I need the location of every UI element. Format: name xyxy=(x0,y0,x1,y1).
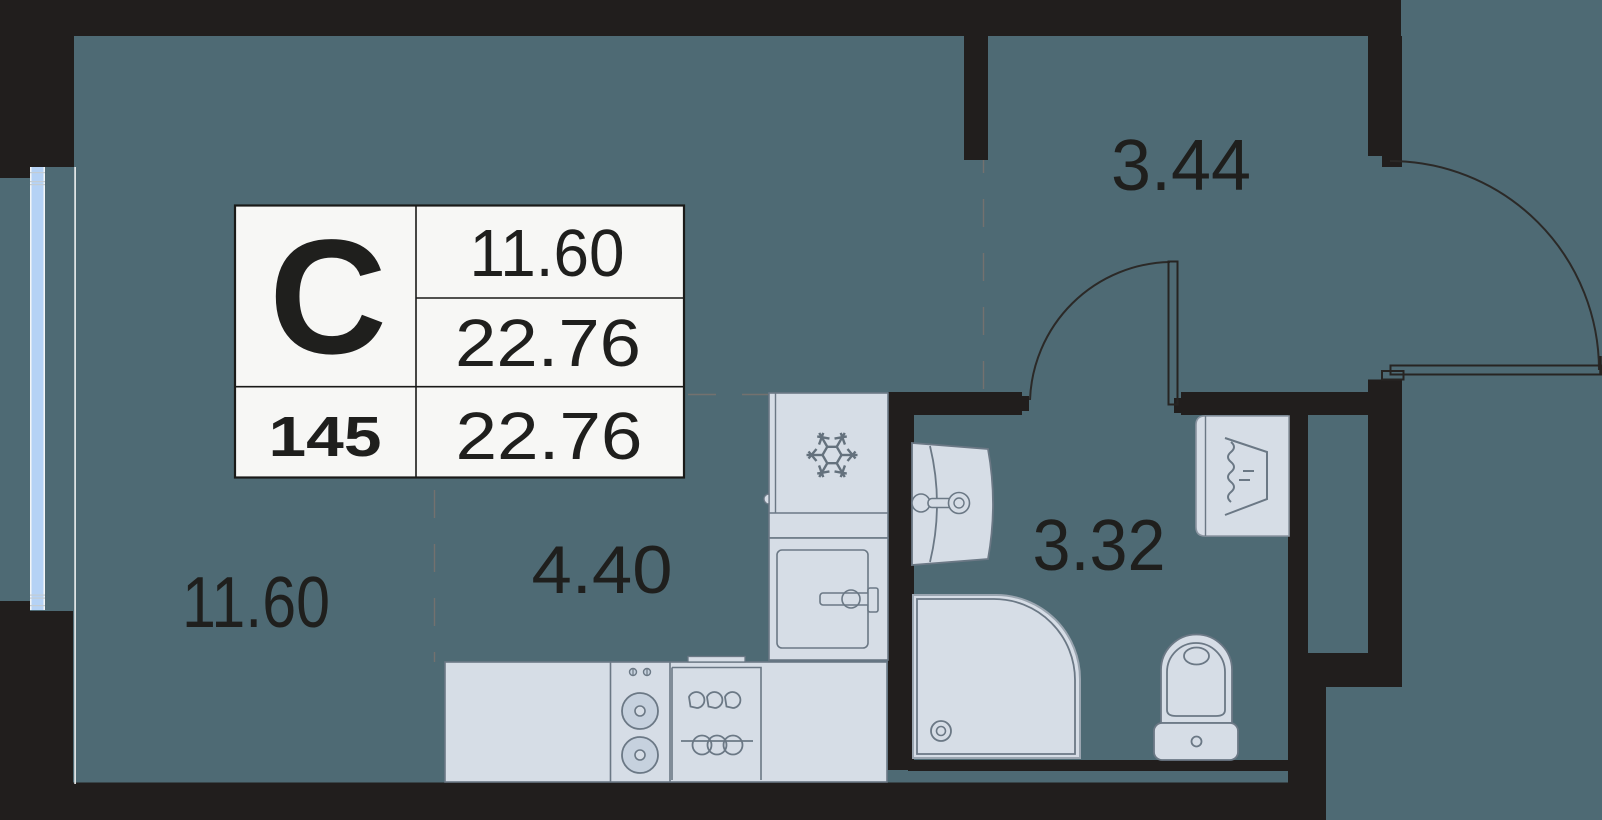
svg-text:C: C xyxy=(269,205,387,388)
svg-text:4.40: 4.40 xyxy=(532,532,673,608)
svg-text:3.32: 3.32 xyxy=(1033,506,1166,586)
svg-text:11.60: 11.60 xyxy=(470,216,625,291)
svg-text:22.76: 22.76 xyxy=(456,399,643,474)
svg-text:3.44: 3.44 xyxy=(1111,126,1251,206)
svg-text:11.60: 11.60 xyxy=(182,563,330,643)
svg-text:22.76: 22.76 xyxy=(455,306,641,381)
svg-text:145: 145 xyxy=(269,405,382,469)
